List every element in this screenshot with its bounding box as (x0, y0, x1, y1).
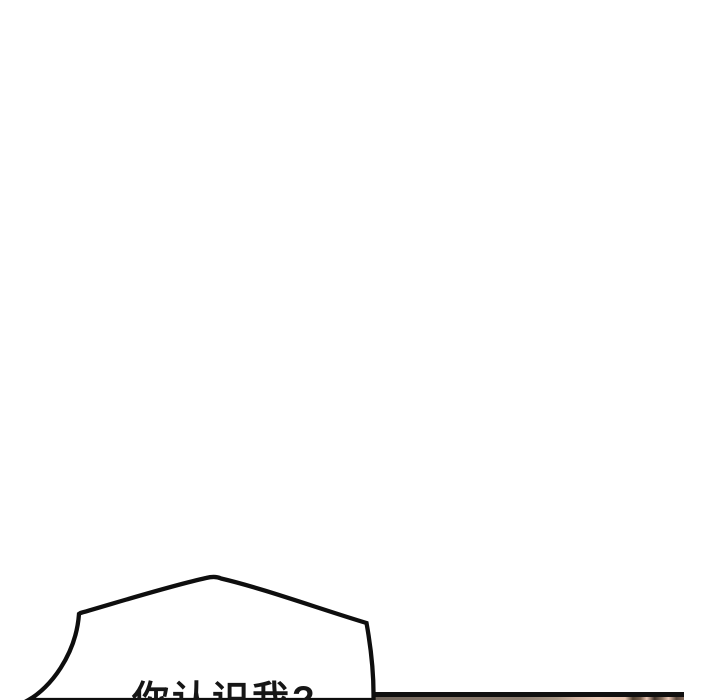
comic-page: 你认识我? (0, 0, 720, 700)
speech-bubble-text: 你认识我? (132, 680, 318, 700)
speech-bubble (0, 0, 720, 700)
